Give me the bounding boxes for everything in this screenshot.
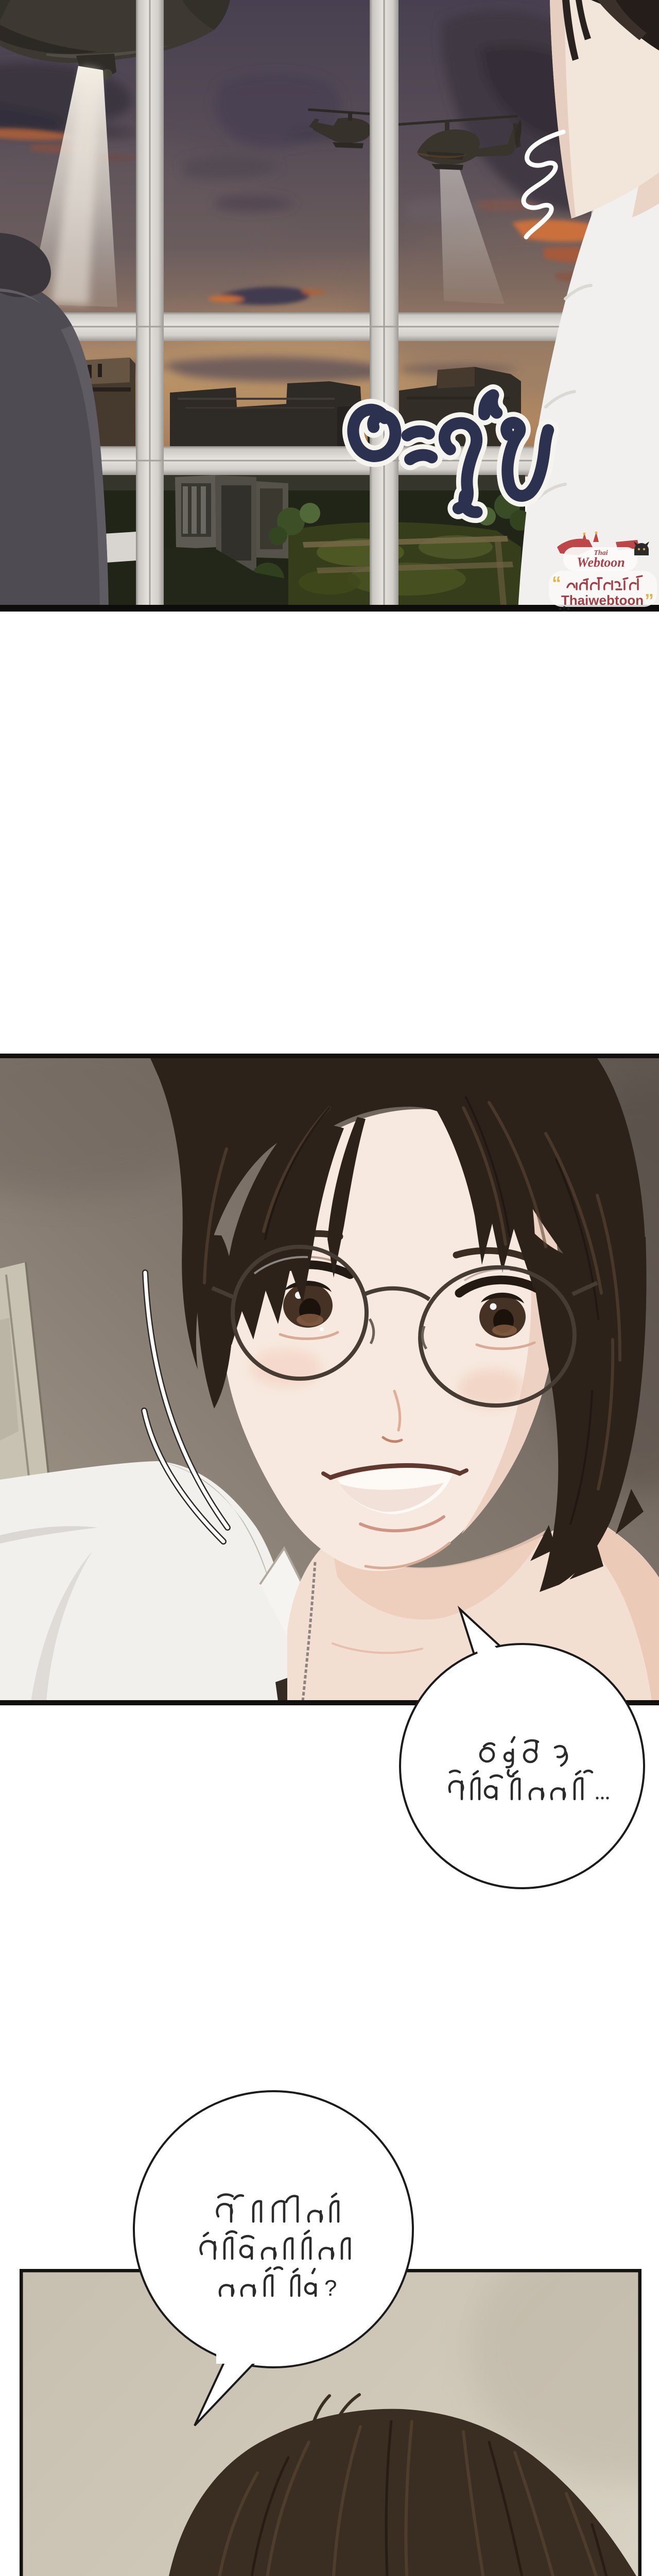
svg-text:Thai: Thai	[594, 549, 608, 557]
svg-text:“: “	[552, 572, 561, 594]
svg-text:Webtoon: Webtoon	[577, 555, 625, 570]
svg-text:”: ”	[645, 590, 654, 611]
svg-text:Thaiwebtoon: Thaiwebtoon	[561, 592, 644, 608]
svg-text:?: ?	[324, 2276, 337, 2301]
